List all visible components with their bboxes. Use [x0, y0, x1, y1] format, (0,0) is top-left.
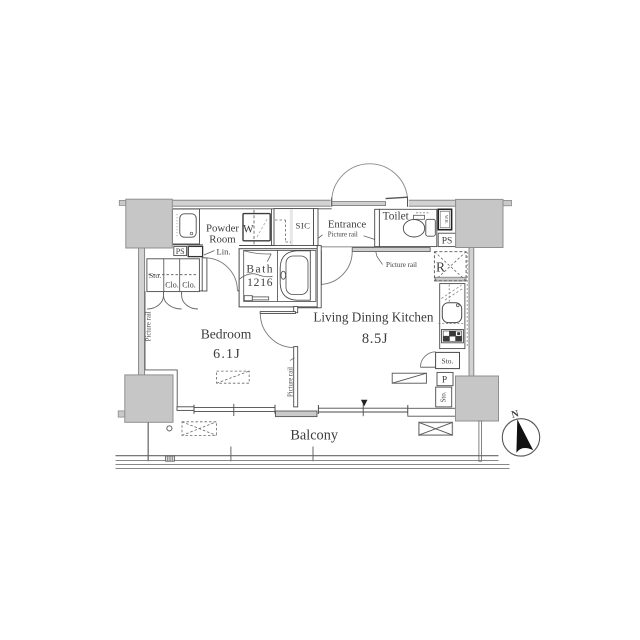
svg-text:Room: Room — [209, 234, 236, 246]
svg-text:SIC: SIC — [296, 220, 311, 230]
svg-text:Powder: Powder — [206, 222, 239, 234]
svg-text:Toilet: Toilet — [383, 211, 410, 223]
svg-text:Clo.: Clo. — [182, 281, 196, 290]
svg-text:Sto.: Sto. — [439, 391, 447, 402]
svg-text:Sto.: Sto. — [442, 357, 454, 366]
svg-text:Bedroom: Bedroom — [201, 326, 252, 341]
svg-text:Picture rail: Picture rail — [145, 311, 152, 341]
svg-text:Picture rail: Picture rail — [386, 261, 417, 269]
svg-text:Sto.: Sto. — [149, 271, 161, 280]
svg-text:Balcony: Balcony — [290, 428, 338, 444]
svg-text:Clo.: Clo. — [165, 281, 179, 290]
svg-text:Lin.: Lin. — [217, 247, 231, 257]
svg-text:R: R — [436, 260, 445, 275]
svg-text:Entrance: Entrance — [328, 219, 367, 231]
svg-text:PS: PS — [442, 237, 453, 247]
svg-text:W: W — [243, 223, 254, 235]
svg-text:PS: PS — [176, 247, 185, 256]
svg-text:W.H.: W.H. — [444, 215, 449, 224]
svg-text:1216: 1216 — [247, 277, 273, 289]
svg-text:Living Dining Kitchen: Living Dining Kitchen — [313, 310, 434, 325]
svg-text:Picture rail: Picture rail — [287, 367, 294, 397]
svg-text:8.5J: 8.5J — [362, 331, 388, 347]
svg-text:Picture rail: Picture rail — [328, 232, 358, 239]
svg-text:P: P — [442, 376, 447, 386]
svg-text:6.1J: 6.1J — [213, 347, 241, 362]
